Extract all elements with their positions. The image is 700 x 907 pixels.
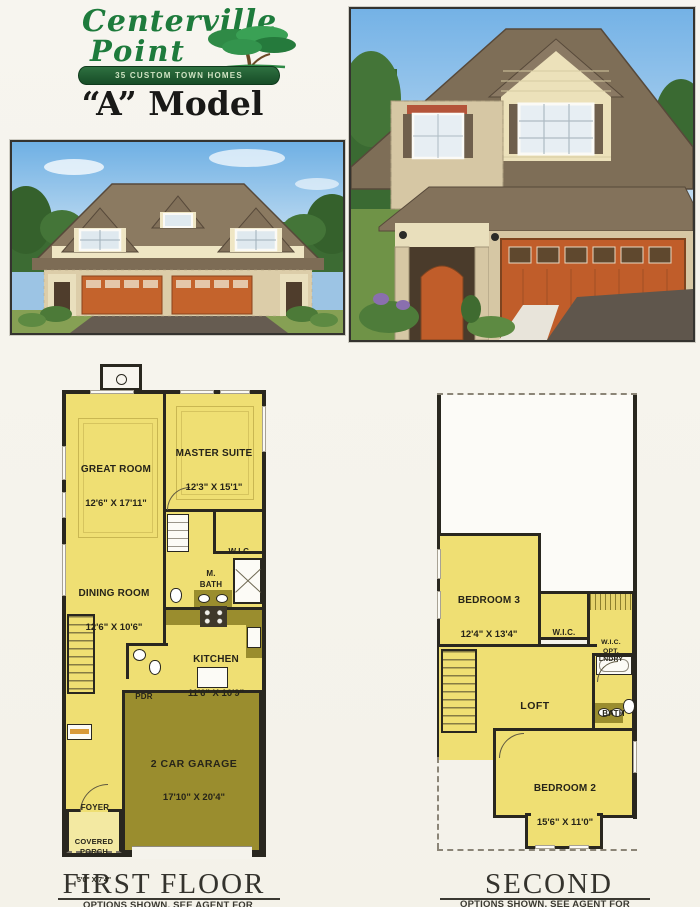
garage-door-opening xyxy=(132,846,252,859)
window xyxy=(90,390,134,394)
closet-shelving xyxy=(590,594,632,610)
wic-opt-lndry-label: W.I.C. OPT. LNDRY xyxy=(589,619,633,685)
bedroom2-label: BEDROOM 2 15'6" X 11'0" xyxy=(497,763,633,849)
window xyxy=(180,390,214,394)
closeup-rendering-art xyxy=(351,9,693,340)
master-suite-label: MASTER SUITE 12'3" X 15'1" xyxy=(166,428,262,514)
wic-label: W.I.C. xyxy=(541,608,587,659)
centerville-point-logo: Centerville Point 35 CUSTOM TOWN HOMES xyxy=(60,4,300,86)
linen-closet xyxy=(167,514,189,552)
front-elevation-rendering xyxy=(10,140,345,335)
open-area xyxy=(439,395,633,533)
bedroom3-label: BEDROOM 3 12'4" X 13'4" xyxy=(439,575,539,661)
hall-area xyxy=(439,732,495,760)
page-title: “A” Model xyxy=(55,84,290,123)
duplex-rendering-art xyxy=(12,142,343,333)
entry-closeup-rendering xyxy=(349,7,695,342)
toilet xyxy=(170,588,182,603)
covered-porch-label: COVERED PORCH 5'0" X 7'4" xyxy=(68,817,120,907)
second-floor-plan: BEDROOM 3 12'4" X 13'4" W.I.C. W.I.C. OP… xyxy=(437,393,637,853)
open-area xyxy=(541,533,633,593)
master-bath-label: M. BATH xyxy=(188,549,234,610)
dashed-boundary xyxy=(437,393,637,395)
tree-icon xyxy=(200,26,300,70)
closet xyxy=(67,724,92,740)
powder-room-label: PDR xyxy=(128,672,160,723)
window xyxy=(62,492,66,518)
great-room-label: GREAT ROOM 12'6" X 17'11" xyxy=(68,444,164,530)
dashed-boundary xyxy=(437,757,439,849)
window xyxy=(220,390,250,394)
flyer-page: Centerville Point 35 CUSTOM TOWN HOMES “… xyxy=(0,0,700,907)
window xyxy=(262,406,266,452)
logo-banner: 35 CUSTOM TOWN HOMES xyxy=(78,66,280,85)
fireplace xyxy=(100,364,142,391)
logo-line2: Point xyxy=(90,34,186,68)
window xyxy=(633,741,637,773)
dining-room-label: DINING ROOM 12'6" X 10'6" xyxy=(66,568,162,654)
garage-label: 2 CAR GARAGE 17'10" X 20'4" xyxy=(126,738,262,825)
bath-label: BATH xyxy=(592,689,635,740)
first-floor-plan: GREAT ROOM 12'6" X 17'11" MASTER SUITE 1… xyxy=(62,390,266,857)
window xyxy=(62,446,66,480)
kitchen-label: KITCHEN 11'6" X 10'9" xyxy=(170,634,262,720)
staircase xyxy=(441,649,477,733)
banner-text: 35 CUSTOM TOWN HOMES xyxy=(115,71,243,80)
second-floor-note: OPTIONS SHOWN, SEE AGENT FOR DETAILS xyxy=(448,899,642,907)
loft-label: LOFT xyxy=(495,680,575,734)
